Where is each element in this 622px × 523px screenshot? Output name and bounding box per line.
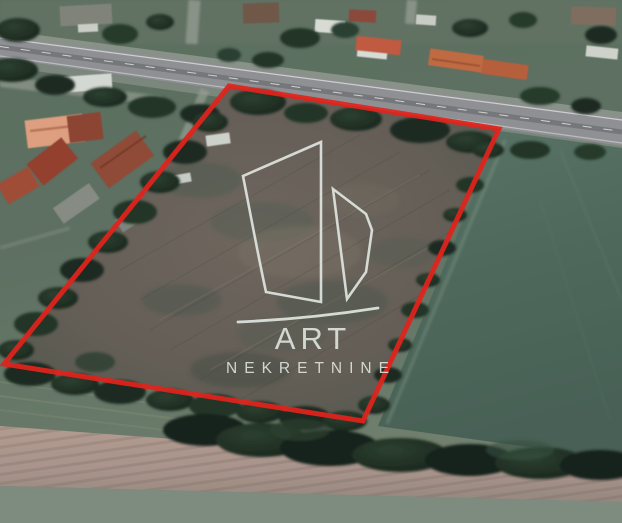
logo-subtitle: NEKRETNINE bbox=[226, 360, 396, 377]
logo-title: ART bbox=[275, 321, 351, 356]
aerial-photo-canvas: ART NEKRETNINE bbox=[0, 0, 622, 523]
aerial-photo: ART NEKRETNINE bbox=[0, 0, 622, 523]
